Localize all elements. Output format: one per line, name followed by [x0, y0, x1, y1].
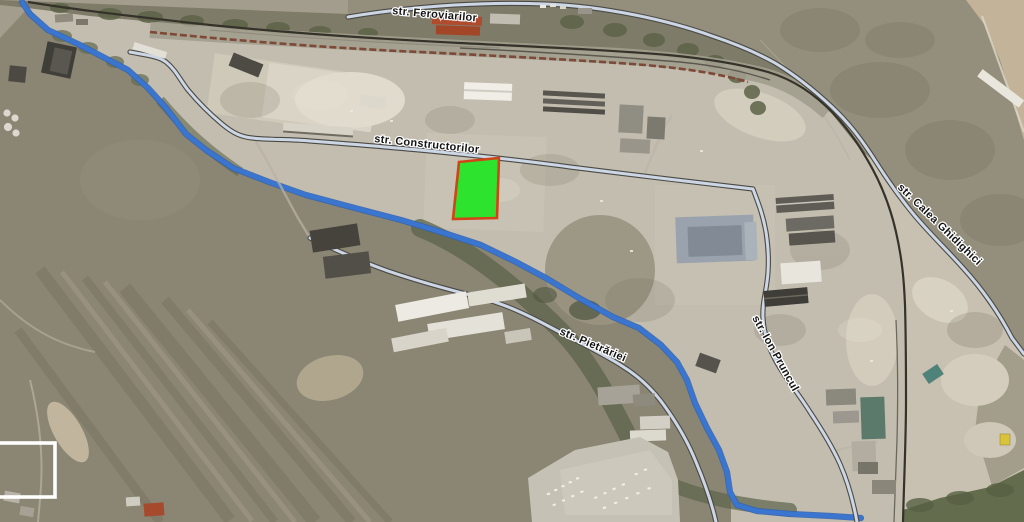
map-canvas[interactable]: str. Feroviarilor str. Constructorilor s… — [0, 0, 1024, 522]
map-container[interactable]: str. Feroviarilor str. Constructorilor s… — [0, 0, 1024, 522]
highlighted-plot[interactable] — [453, 158, 499, 219]
